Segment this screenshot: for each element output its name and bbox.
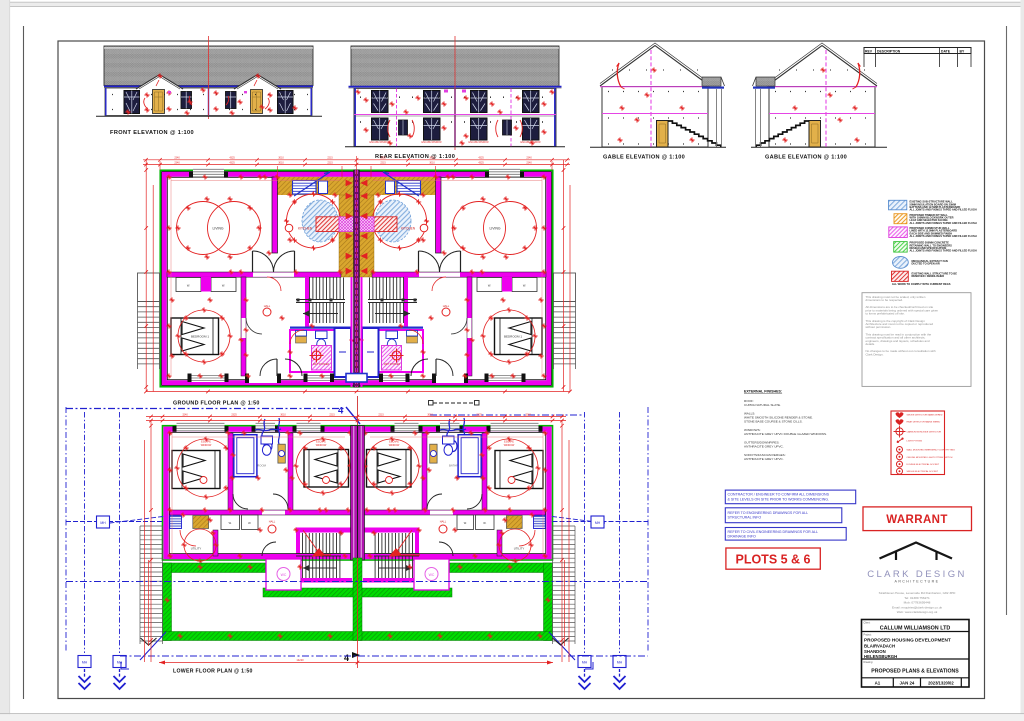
svg-text:ESCAPE WINDOW: ESCAPE WINDOW xyxy=(369,141,390,144)
svg-text:GROUND FLOOR PLAN @ 1:50: GROUND FLOOR PLAN @ 1:50 xyxy=(173,400,260,406)
svg-text:ALL JOINTS AND FIXINGS TAPED A: ALL JOINTS AND FIXINGS TAPED AND FILLED … xyxy=(910,234,977,238)
svg-text:BEDROOM 1: BEDROOM 1 xyxy=(191,334,209,338)
svg-text:KITCHEN: KITCHEN xyxy=(401,227,416,231)
svg-text:Clark Design.: Clark Design. xyxy=(866,352,884,356)
svg-text:Client:: Client: xyxy=(864,622,871,625)
svg-text:WC: WC xyxy=(429,573,435,577)
svg-text:REMOVED / DEMOLISHED: REMOVED / DEMOLISHED xyxy=(912,274,945,278)
svg-text:JAN 24: JAN 24 xyxy=(899,680,914,685)
svg-text:LIGHT FITTING: LIGHT FITTING xyxy=(907,441,923,443)
svg-text:3010: 3010 xyxy=(280,413,286,416)
svg-text:2215: 2215 xyxy=(380,157,386,160)
svg-text:ALL JOINTS AND FIXINGS TAPED A: ALL JOINTS AND FIXINGS TAPED AND FILLED … xyxy=(910,221,977,225)
svg-text:ALL JOINTS AND FIXINGS TAPED A: ALL JOINTS AND FIXINGS TAPED AND FILLED … xyxy=(910,249,977,253)
svg-text:WARRANT: WARRANT xyxy=(886,514,948,526)
svg-text:LIVING: LIVING xyxy=(212,227,223,231)
svg-text:ANTHRACITE GREY UPVC.: ANTHRACITE GREY UPVC. xyxy=(744,444,784,448)
svg-text:W.: W. xyxy=(248,521,251,525)
svg-text:3010: 3010 xyxy=(278,157,284,160)
svg-text:SMOKE DETECTOR MAINS WIRED: SMOKE DETECTOR MAINS WIRED xyxy=(907,414,943,417)
svg-text:WINDOW: WINDOW xyxy=(201,444,212,447)
svg-text:CALLUM WILLIAMSON LTD: CALLUM WILLIAMSON LTD xyxy=(880,625,951,631)
svg-text:STONE BASE COURSE & STONE CILL: STONE BASE COURSE & STONE CILLS. xyxy=(744,420,803,424)
svg-text:ALL JOINTS AND FIXINGS TAPED A: ALL JOINTS AND FIXINGS TAPED AND FILLED … xyxy=(910,208,977,212)
svg-text:HALL: HALL xyxy=(443,304,450,308)
svg-text:4325: 4325 xyxy=(478,161,484,164)
svg-text:Project:: Project: xyxy=(864,633,872,636)
svg-text:WINDOW: WINDOW xyxy=(504,444,515,447)
svg-text:GABLE ELEVATION @ 1:100: GABLE ELEVATION @ 1:100 xyxy=(603,155,685,161)
svg-text:& SITE LEVELS ON SITE PRIOR TO: & SITE LEVELS ON SITE PRIOR TO WORKS COM… xyxy=(728,498,830,502)
svg-text:4325: 4325 xyxy=(478,157,484,160)
svg-text:3010: 3010 xyxy=(427,413,433,416)
svg-text:4: 4 xyxy=(338,406,344,417)
svg-text:Drawing:: Drawing: xyxy=(864,661,874,664)
svg-text:LOWER FLOOR PLAN @ 1:50: LOWER FLOOR PLAN @ 1:50 xyxy=(173,669,253,675)
svg-text:DRAINAGE INFO: DRAINAGE INFO xyxy=(728,535,757,539)
svg-text:2215: 2215 xyxy=(378,413,384,416)
svg-text:MH: MH xyxy=(595,521,601,525)
svg-text:W.: W. xyxy=(483,521,486,525)
svg-text:DATE: DATE xyxy=(941,49,951,53)
svg-text:ALL WORK TO COMPLY WITH CURREN: ALL WORK TO COMPLY WITH CURRENT REGS xyxy=(892,282,951,286)
svg-text:LIVING: LIVING xyxy=(489,227,500,231)
svg-text:W.: W. xyxy=(229,521,232,525)
svg-text:3240: 3240 xyxy=(525,413,531,416)
svg-text:W.: W. xyxy=(222,283,225,287)
svg-text:DESCRIPTION: DESCRIPTION xyxy=(877,49,901,53)
svg-text:MH: MH xyxy=(100,521,106,525)
svg-text:EXTERNAL FINISHES:: EXTERNAL FINISHES: xyxy=(744,390,782,394)
svg-text:DUCTED TO OPEN AIR: DUCTED TO OPEN AIR xyxy=(912,262,940,266)
svg-text:CARBON MONOXIDE DETECTOR: CARBON MONOXIDE DETECTOR xyxy=(907,431,942,434)
svg-text:DOUBLE ELECTRICAL SOCKET: DOUBLE ELECTRICAL SOCKET xyxy=(907,463,940,466)
svg-text:ESCAPE WINDOW: ESCAPE WINDOW xyxy=(468,141,489,144)
svg-text:WC: WC xyxy=(281,573,287,577)
svg-text:Web: www.clarkdesign.org.uk: Web: www.clarkdesign.org.uk xyxy=(897,610,938,614)
svg-text:details.: details. xyxy=(866,342,876,346)
svg-text:2325: 2325 xyxy=(231,413,237,416)
svg-text:CUPRA NATURAL SLATE.: CUPRA NATURAL SLATE. xyxy=(744,403,781,407)
svg-text:Mob: 07783695448: Mob: 07783695448 xyxy=(904,601,931,605)
svg-text:to items prefabricated off sit: to items prefabricated off site. xyxy=(866,312,905,316)
svg-text:3010: 3010 xyxy=(429,161,435,164)
svg-text:KITCHEN: KITCHEN xyxy=(298,227,313,231)
svg-text:4325: 4325 xyxy=(229,157,235,160)
svg-text:dimensions to be respected.: dimensions to be respected. xyxy=(866,298,904,302)
svg-text:FRONT ELEVATION @ 1:100: FRONT ELEVATION @ 1:100 xyxy=(110,130,194,136)
svg-text:WINDOW: WINDOW xyxy=(316,444,327,447)
svg-text:WALL MOUNTED EMERGENCY LIGHT F: WALL MOUNTED EMERGENCY LIGHT FITTING xyxy=(907,449,956,452)
svg-text:STRUCTURAL INFO: STRUCTURAL INFO xyxy=(728,516,762,520)
svg-text:PROPOSED PLANS & ELEVATIONS: PROPOSED PLANS & ELEVATIONS xyxy=(871,668,959,674)
svg-text:WET SHOWER: WET SHOWER xyxy=(313,364,329,366)
svg-text:REFER TO ENGINEERING DRAWINGS: REFER TO ENGINEERING DRAWINGS FOR ALL xyxy=(728,511,809,515)
svg-text:2340: 2340 xyxy=(174,157,180,160)
svg-text:2340: 2340 xyxy=(174,161,180,164)
svg-text:MH: MH xyxy=(617,661,623,665)
svg-text:3240: 3240 xyxy=(182,413,188,416)
svg-text:PLOTS 5 & 6: PLOTS 5 & 6 xyxy=(735,553,810,567)
svg-text:without permission.: without permission. xyxy=(866,325,892,329)
svg-text:ANTHRACITE GREY UPVC DOUBLE GL: ANTHRACITE GREY UPVC DOUBLE GLAZED WINDO… xyxy=(744,432,827,436)
svg-text:REV: REV xyxy=(865,49,873,53)
svg-text:PROPOSED HOUSING DEVELOPMENT: PROPOSED HOUSING DEVELOPMENT xyxy=(864,638,951,643)
svg-text:engineers, drawings and layout: engineers, drawings and layouts, schedul… xyxy=(866,339,930,343)
svg-text:W.: W. xyxy=(187,283,190,287)
svg-text:UTILITY: UTILITY xyxy=(191,546,202,550)
svg-text:Email: enquiries@clark-design.: Email: enquiries@clark-design.co.uk xyxy=(892,605,943,609)
svg-text:ANTHRACITE GREY UPVC.: ANTHRACITE GREY UPVC. xyxy=(744,457,784,461)
svg-text:2215: 2215 xyxy=(329,413,335,416)
svg-text:Tel: 01389 756271: Tel: 01389 756271 xyxy=(904,596,930,600)
svg-text:W.: W. xyxy=(488,283,491,287)
svg-text:MH: MH xyxy=(582,661,588,665)
svg-text:WINDOW: WINDOW xyxy=(389,444,400,447)
svg-text:HELENSBURGH: HELENSBURGH xyxy=(864,654,897,659)
svg-text:REAR ELEVATION @ 1:100: REAR ELEVATION @ 1:100 xyxy=(375,154,455,160)
svg-text:HEAT DETECTOR MAINS WIRED: HEAT DETECTOR MAINS WIRED xyxy=(907,421,941,424)
svg-text:ARCHITECTURE: ARCHITECTURE xyxy=(895,580,940,584)
svg-text:HALL: HALL xyxy=(440,520,447,524)
svg-text:2215: 2215 xyxy=(327,161,333,164)
svg-text:SINGLE ELECTRICAL SOCKET: SINGLE ELECTRICAL SOCKET xyxy=(907,470,939,473)
svg-text:CEILING MOUNTED LIGHT FITTING: CEILING MOUNTED LIGHT FITTING SWITCH xyxy=(907,457,953,459)
svg-text:2340: 2340 xyxy=(526,161,532,164)
svg-text:MH: MH xyxy=(117,661,123,665)
svg-text:MH: MH xyxy=(82,661,88,665)
svg-text:BY: BY xyxy=(960,49,965,53)
svg-text:A1: A1 xyxy=(875,680,881,685)
svg-text:HALL: HALL xyxy=(264,304,271,308)
svg-text:WET SHOWER: WET SHOWER xyxy=(384,364,400,366)
svg-text:REFER TO CIVIL ENGINEERING DRA: REFER TO CIVIL ENGINEERING DRAWINGS FOR … xyxy=(728,530,818,534)
svg-text:CONTRACTOR / ENGINEER TO CONFI: CONTRACTOR / ENGINEER TO CONFIRM ALL DIM… xyxy=(728,493,830,497)
svg-text:CLARK DESIGN: CLARK DESIGN xyxy=(867,569,967,580)
svg-text:2325: 2325 xyxy=(476,413,482,416)
svg-text:2023/1320/02: 2023/1320/02 xyxy=(928,680,954,685)
svg-text:2340: 2340 xyxy=(526,157,532,160)
svg-text:GABLE ELEVATION @ 1:100: GABLE ELEVATION @ 1:100 xyxy=(765,155,847,161)
svg-text:2215: 2215 xyxy=(327,157,333,160)
svg-text:4325: 4325 xyxy=(229,161,235,164)
svg-text:BEDROOM 1: BEDROOM 1 xyxy=(504,334,522,338)
svg-text:3010: 3010 xyxy=(278,161,284,164)
svg-text:HALL: HALL xyxy=(269,520,276,524)
svg-text:14220: 14220 xyxy=(296,658,304,662)
svg-text:3010: 3010 xyxy=(429,157,435,160)
svg-text:2215: 2215 xyxy=(380,161,386,164)
svg-text:ESCAPE WINDOW: ESCAPE WINDOW xyxy=(421,141,442,144)
svg-text:W.: W. xyxy=(523,283,526,287)
svg-text:UTILITY: UTILITY xyxy=(514,546,525,550)
svg-text:W.: W. xyxy=(464,521,467,525)
svg-text:4: 4 xyxy=(344,653,349,663)
svg-text:Strathleven House, Levenside R: Strathleven House, Levenside Rd Dumbarto… xyxy=(879,591,956,595)
